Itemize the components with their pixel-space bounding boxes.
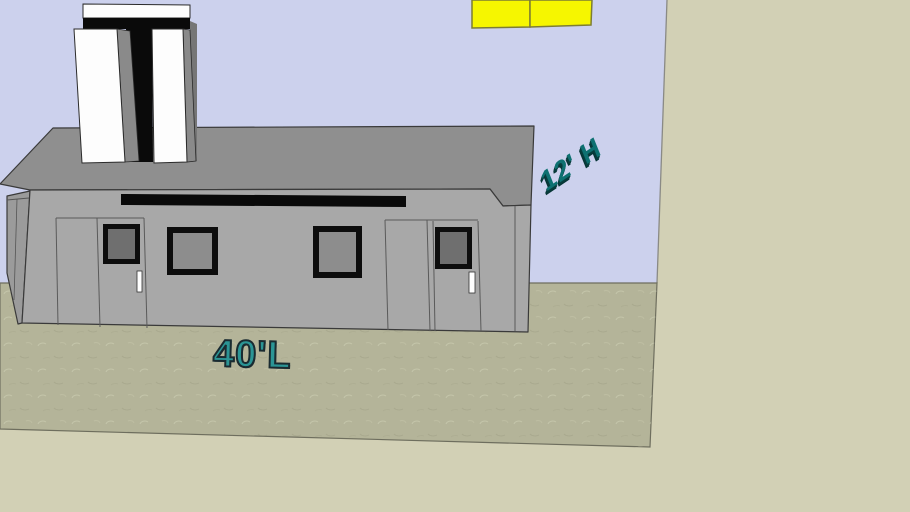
yellow-panel-right[interactable] — [530, 0, 592, 27]
door-2-handle[interactable] — [469, 272, 475, 293]
chimney-black-band — [83, 18, 190, 29]
facade-stripe — [121, 194, 406, 207]
window-2[interactable] — [319, 232, 356, 272]
door-1-handle[interactable] — [137, 271, 142, 292]
door-2-window[interactable] — [440, 232, 467, 264]
chimney-back-panel[interactable] — [83, 4, 190, 18]
yellow-panel-left[interactable] — [472, 0, 530, 28]
door-1-window[interactable] — [108, 229, 135, 259]
window-1[interactable] — [173, 233, 212, 269]
model-viewport: 12' H 40'L — [0, 0, 910, 512]
chimney-left-pillar[interactable] — [74, 29, 125, 163]
scene-canvas — [0, 0, 910, 512]
yellow-panels[interactable] — [472, 0, 592, 28]
length-label[interactable]: 40'L — [212, 333, 292, 378]
chimney[interactable] — [74, 4, 197, 163]
chimney-right-pillar[interactable] — [152, 29, 187, 163]
